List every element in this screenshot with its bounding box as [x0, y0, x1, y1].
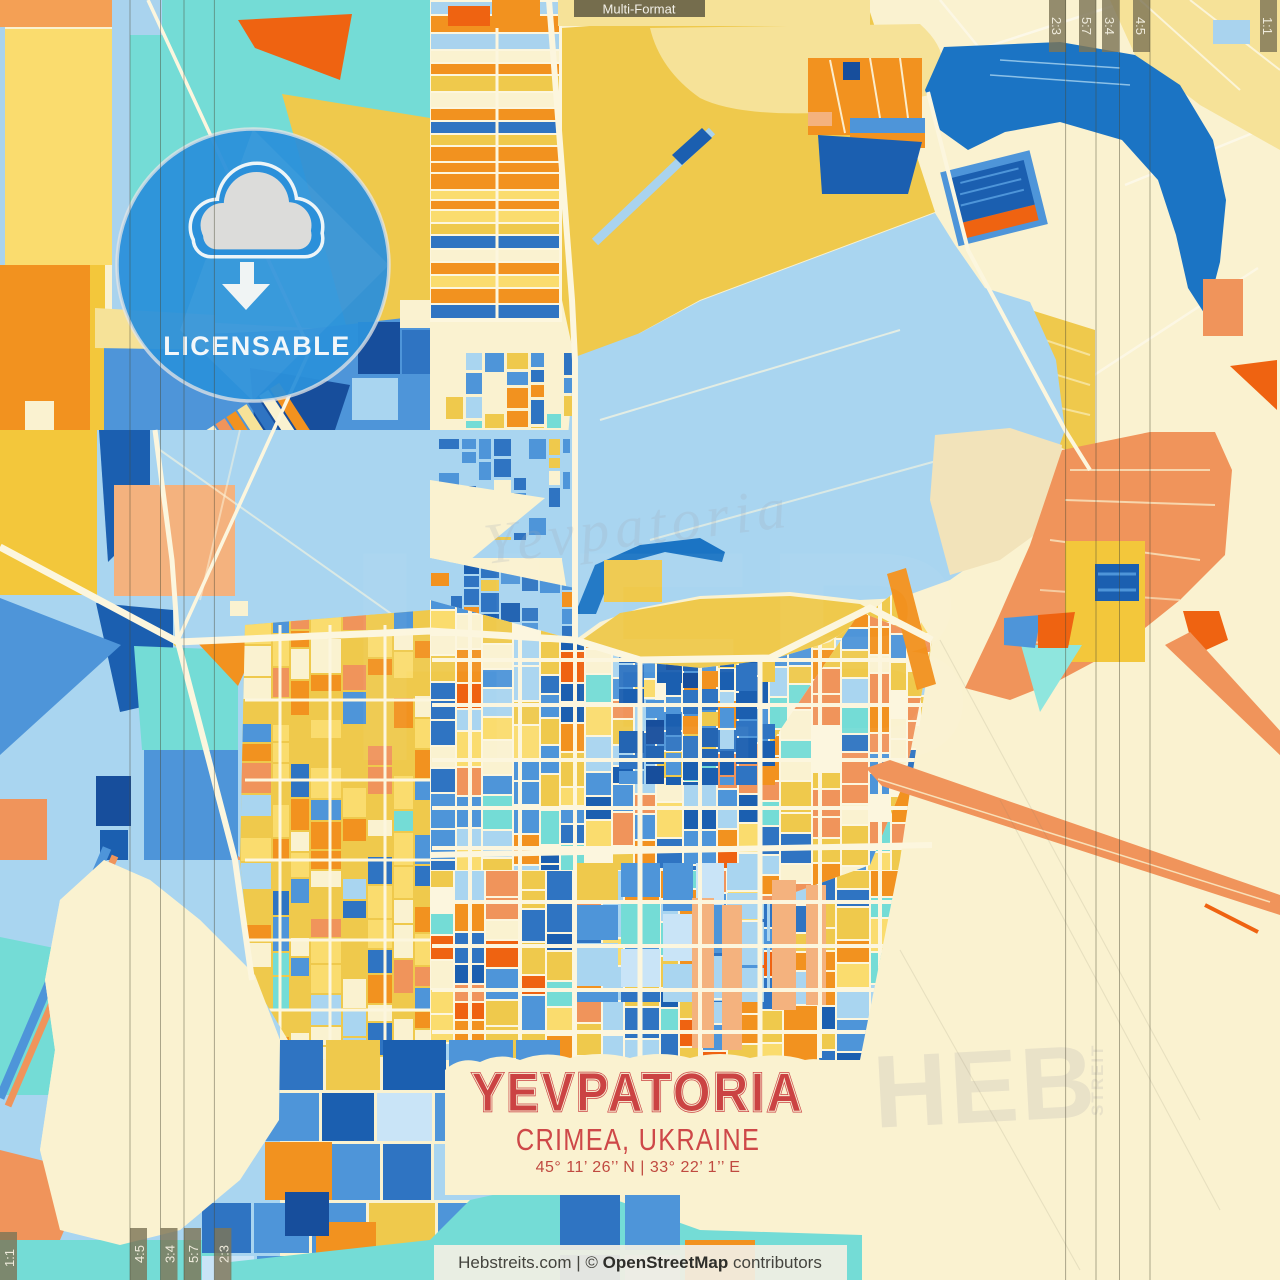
svg-text:1:1: 1:1	[2, 1249, 17, 1267]
svg-text:5:7: 5:7	[186, 1245, 201, 1263]
svg-text:Hebstreits.com | © OpenStreetM: Hebstreits.com | © OpenStreetMap contrib…	[458, 1253, 822, 1272]
svg-text:2:3: 2:3	[1049, 17, 1064, 35]
svg-text:HEB: HEB	[870, 1023, 1099, 1150]
svg-text:5:7: 5:7	[1079, 17, 1094, 35]
svg-text:2:3: 2:3	[216, 1245, 231, 1263]
svg-text:3:4: 3:4	[163, 1245, 178, 1263]
svg-text:4:5: 4:5	[132, 1245, 147, 1263]
svg-text:3:4: 3:4	[1102, 17, 1117, 35]
svg-text:1:1: 1:1	[1260, 17, 1275, 35]
svg-text:LICENSABLE: LICENSABLE	[163, 331, 351, 361]
svg-text:CRIMEA, UKRAINE: CRIMEA, UKRAINE	[516, 1123, 760, 1158]
svg-text:YEVPATORIA: YEVPATORIA	[472, 1061, 805, 1123]
svg-text:Multi-Format: Multi-Format	[603, 2, 676, 17]
svg-text:STREIT: STREIT	[1088, 1044, 1107, 1116]
svg-text:45° 11’ 26’’ N | 33° 22’: 45° 11’ 26’’ N | 33° 22’ 1’’ E	[536, 1159, 741, 1176]
svg-text:4:5: 4:5	[1133, 17, 1148, 35]
